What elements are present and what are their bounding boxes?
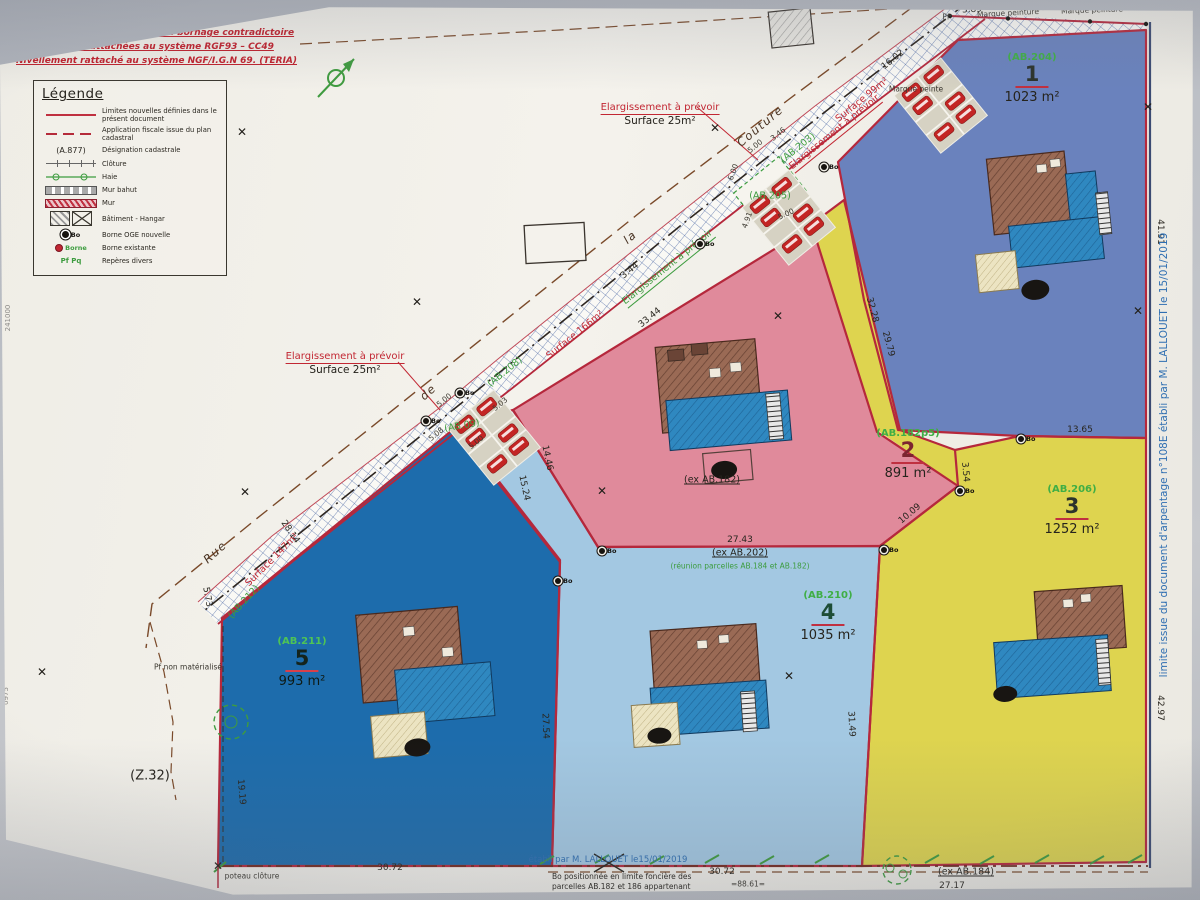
map-label: Pf non matérialisé	[154, 663, 222, 672]
map-label: 3.44	[619, 261, 641, 281]
map-label: Marque peinte	[889, 85, 943, 94]
survey-cross-mark: ✕	[597, 484, 607, 498]
map-label: (AB.205)	[749, 191, 791, 202]
legend-item: Pf Pq Repères divers	[40, 256, 222, 266]
map-label: 5.08	[427, 425, 446, 443]
map-label: 241000	[4, 305, 12, 332]
legend-item: Borne Borne existante	[40, 243, 222, 253]
cadastral-ref-sample: (A.877)	[40, 146, 102, 155]
legend-item: Bo Borne OGE nouvelle	[40, 230, 222, 240]
boundary-marker-bo: Bo	[697, 240, 714, 248]
right-margin-note: limite issue du document d'arpentage n°1…	[1158, 233, 1170, 678]
legend-item: Mur	[40, 198, 222, 208]
legend-item: Clôture	[40, 159, 222, 169]
new-boundary-marker-icon: Bo	[40, 231, 102, 239]
notice-line: Plan établi sans délimitation ni bornage…	[16, 27, 297, 41]
parcel-label-4: (AB.210) 4 1035 m²	[800, 590, 855, 643]
parcel-label-2: (AB.182p5) 2 891 m²	[876, 428, 939, 481]
map-label: 27.43	[727, 535, 753, 545]
legend-title: Légende	[42, 86, 222, 102]
map-label: 6.00	[726, 163, 740, 182]
survey-cross-mark: ✕	[213, 859, 223, 873]
map-label: poteau clôture	[225, 872, 280, 881]
boundary-marker-bo: Bo	[599, 547, 616, 555]
survey-cross-mark: ✕	[784, 669, 794, 683]
survey-cross-mark: ✕	[1133, 304, 1143, 318]
survey-cross-mark: ✕	[237, 125, 247, 139]
map-label: (ex AB.182)	[684, 475, 740, 486]
map-label: 5.00	[467, 433, 486, 451]
legend-item: (A.877) Désignation cadastrale	[40, 145, 222, 155]
map-label: 27.17	[939, 881, 965, 891]
map-label: =88.61=	[731, 880, 765, 889]
survey-cross-mark: ✕	[412, 295, 422, 309]
map-label: 13.65	[1067, 425, 1093, 435]
map-label: (AB.208)	[485, 355, 524, 390]
legend-item: Application fiscale issue du plan cadast…	[40, 126, 222, 142]
boundary-marker-bo: Bo	[457, 389, 474, 397]
plan-paper: 3.899.833.96Marque peintureMarque peintu…	[0, 0, 1200, 900]
widening-annotation-left: Elargissement à prévoir Surface 25m²	[286, 344, 405, 376]
fence-icon	[40, 160, 102, 167]
fiscal-dash-line-icon	[40, 133, 102, 135]
wall-icon	[40, 199, 102, 208]
map-label: 29.79	[880, 330, 896, 357]
notice-line: Coordonnées rattachées au système RGF93 …	[16, 41, 297, 55]
map-label: 30.72	[377, 863, 403, 873]
notice-line: Nivellement rattaché au système NGF/I.G.…	[16, 55, 297, 69]
map-label: 5.03	[491, 395, 510, 413]
map-label: Marque peinture	[977, 7, 1039, 19]
low-wall-icon	[40, 186, 102, 195]
map-label: 10.09	[897, 502, 923, 526]
legend-box: Légende Limites nouvelles définies dans …	[33, 80, 227, 276]
map-label: 16.02	[880, 48, 906, 72]
map-label: 19.19	[235, 779, 247, 806]
existing-boundary-marker-icon: Borne	[40, 244, 102, 252]
survey-cross-mark: ✕	[37, 665, 47, 679]
map-label: 15.24	[516, 474, 531, 501]
map-label: (Z.32)	[130, 769, 170, 784]
boundary-marker-bo: Bo	[881, 546, 898, 554]
map-label: 5.00	[435, 391, 454, 409]
new-limit-line-icon	[40, 114, 102, 116]
widening-annotation-top: Elargissement à prévoir Surface 25m²	[601, 95, 720, 127]
map-label: 31.49	[845, 711, 856, 737]
legend-item: Haie	[40, 172, 222, 182]
map-label: 33.44	[637, 306, 663, 330]
map-label: (AB.09)	[444, 417, 481, 434]
boundary-marker-bo: Bo	[423, 417, 440, 425]
legend-item: Mur bahut	[40, 185, 222, 195]
map-label: 30.72	[709, 867, 735, 877]
map-label: 14.46	[539, 444, 554, 471]
map-label: 32.28	[864, 296, 880, 323]
map-label: (AB.212)	[226, 583, 262, 621]
boundary-marker-bo: Bo	[1018, 435, 1035, 443]
map-label: Surface 147m²	[243, 531, 301, 589]
map-label: Pf	[942, 13, 949, 22]
map-label: 3.54	[959, 462, 971, 483]
survey-cross-mark: ✕	[773, 309, 783, 323]
parcel-label-1: (AB.204) 1 1023 m²	[1004, 52, 1059, 105]
map-label: 27.54	[540, 713, 551, 739]
map-label: 0975	[2, 687, 10, 705]
map-label: (réunion parcelles AB.184 et AB.182)	[670, 562, 809, 571]
map-label: Rue	[200, 538, 229, 566]
map-label: la	[620, 227, 639, 246]
map-label: 42.97	[1155, 695, 1165, 721]
map-label: Elargissement à prévoir	[787, 92, 883, 173]
boundary-marker-bo: Bo	[555, 577, 572, 585]
bottom-note-left: Bo positionnée en limite foncière des pa…	[552, 872, 691, 892]
map-label: (ex AB.202)	[712, 548, 768, 559]
map-label: 3.46	[769, 125, 788, 143]
legend-item: Limites nouvelles définies dans le prése…	[40, 107, 222, 123]
map-label: 5.00	[777, 206, 796, 221]
boundary-marker-bo: Bo	[821, 163, 838, 171]
survey-cross-mark: ✕	[1143, 100, 1153, 114]
map-label: 4.91	[740, 211, 754, 230]
misc-marks-icon: Pf Pq	[40, 257, 102, 265]
building-hangar-icon	[40, 211, 102, 226]
plan-notices: Plan établi sans délimitation ni bornage…	[16, 27, 297, 69]
bottom-note-right: Bo positionnée en limite foncière des	[862, 890, 1001, 900]
legend-item: Bâtiment - Hangar	[40, 211, 222, 226]
photo-background: 3.899.833.96Marque peintureMarque peintu…	[0, 0, 1200, 900]
map-label: 5.73	[200, 586, 213, 607]
map-label: 3.96	[1120, 1, 1140, 12]
parcel-label-5: (AB.211) 5 993 m²	[277, 636, 326, 689]
map-label: Surface 166m²	[544, 309, 606, 362]
bottom-struck-note: établi par M. LALLOUET le15/01/2019	[529, 855, 688, 865]
boundary-marker-bo: Bo	[957, 487, 974, 495]
parcel-label-3: (AB.206) 3 1252 m²	[1044, 484, 1099, 537]
hedge-icon	[40, 172, 102, 182]
survey-cross-mark: ✕	[240, 485, 250, 499]
map-label: Marque peinture	[1061, 4, 1123, 15]
map-label: (ex AB.184)	[938, 867, 994, 878]
